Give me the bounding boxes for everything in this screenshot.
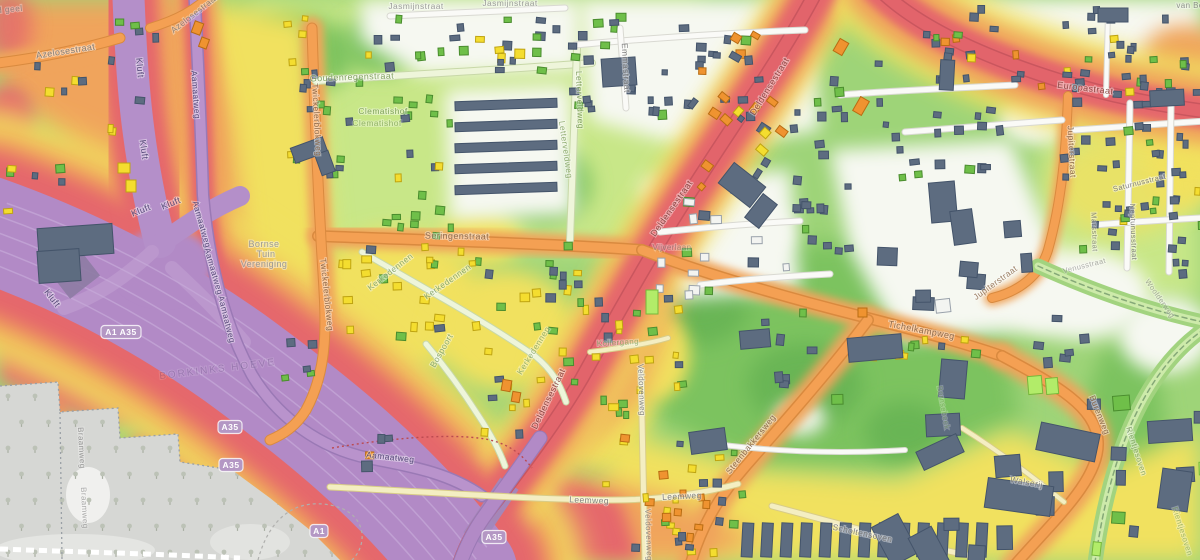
building — [574, 270, 582, 276]
building — [1134, 101, 1143, 108]
building — [1080, 70, 1089, 77]
building — [1194, 411, 1200, 423]
building — [537, 67, 547, 74]
building — [1111, 447, 1126, 461]
building — [1150, 56, 1157, 62]
building — [1045, 378, 1058, 395]
building — [1146, 140, 1153, 146]
street-label: Leemweg — [569, 494, 609, 505]
building — [1179, 269, 1187, 278]
building — [944, 53, 952, 60]
road-minor-tr — [1106, 12, 1108, 95]
building — [899, 174, 906, 181]
building — [688, 270, 698, 276]
building — [1085, 57, 1092, 63]
building — [560, 272, 566, 280]
building — [396, 15, 402, 23]
building — [711, 215, 722, 223]
building — [897, 146, 903, 153]
building — [630, 355, 639, 364]
building — [1135, 123, 1144, 131]
building — [699, 480, 707, 487]
building — [1169, 212, 1178, 219]
building — [308, 340, 317, 348]
building — [281, 375, 288, 381]
building — [131, 22, 140, 29]
building — [916, 290, 931, 302]
street-label: Vijverlaan — [653, 243, 692, 252]
building — [571, 53, 580, 60]
building — [700, 253, 708, 261]
building — [303, 366, 311, 373]
building — [648, 97, 653, 104]
building — [1108, 229, 1116, 236]
building — [935, 298, 951, 313]
building — [858, 308, 867, 317]
building — [817, 204, 824, 213]
street-label: Leemweg — [662, 490, 702, 502]
building — [1177, 133, 1183, 140]
building — [624, 411, 629, 418]
building — [343, 296, 352, 303]
building — [59, 179, 65, 185]
building — [395, 174, 401, 182]
building — [361, 269, 371, 277]
building — [361, 461, 372, 472]
building — [971, 349, 980, 357]
building — [447, 120, 453, 128]
map-canvas[interactable]: d geelAzelosestraatAzelosestraatKluftKlu… — [0, 0, 1200, 560]
building — [1111, 242, 1119, 250]
building — [336, 165, 344, 170]
building — [1195, 187, 1200, 195]
building — [685, 544, 693, 550]
building — [108, 124, 113, 132]
building — [1153, 197, 1159, 205]
building — [677, 441, 684, 447]
building — [575, 281, 583, 288]
building — [715, 517, 723, 525]
building — [601, 42, 610, 49]
building — [1113, 161, 1119, 168]
building — [790, 125, 798, 133]
building — [741, 523, 754, 558]
building — [475, 36, 484, 42]
building — [383, 219, 392, 226]
motorway-shield: A35 — [482, 531, 506, 544]
building — [648, 327, 658, 336]
building — [497, 303, 506, 310]
building — [996, 125, 1004, 135]
building — [990, 26, 998, 32]
building — [1150, 208, 1156, 214]
building — [933, 112, 941, 119]
building — [378, 434, 385, 443]
building — [1173, 259, 1179, 266]
building — [407, 150, 413, 158]
building — [559, 348, 566, 356]
building — [553, 26, 560, 33]
building — [1012, 76, 1021, 82]
motorway-shield-label: A1 — [313, 526, 325, 536]
building — [108, 57, 114, 65]
building — [935, 160, 945, 169]
building — [877, 99, 883, 107]
building — [645, 356, 654, 363]
building — [1108, 52, 1115, 58]
building — [1038, 83, 1045, 90]
building — [713, 52, 720, 58]
building — [289, 59, 296, 66]
building — [498, 59, 504, 65]
building — [793, 205, 801, 212]
building — [1082, 136, 1091, 144]
building — [908, 343, 914, 351]
building — [45, 88, 54, 97]
building — [914, 171, 922, 178]
building — [457, 24, 464, 32]
building — [418, 191, 426, 199]
building — [1115, 206, 1121, 212]
building — [126, 180, 136, 192]
building — [284, 21, 292, 27]
building — [689, 214, 697, 224]
building — [559, 281, 566, 290]
building — [877, 247, 897, 266]
building — [685, 291, 693, 300]
building — [1152, 150, 1160, 157]
building — [729, 520, 738, 528]
building — [679, 532, 686, 540]
building — [892, 133, 900, 141]
building — [410, 221, 418, 228]
building — [751, 237, 762, 244]
building — [832, 394, 844, 404]
building — [1063, 174, 1069, 180]
building — [564, 358, 574, 366]
building — [609, 404, 619, 411]
building — [662, 70, 667, 75]
building — [738, 97, 748, 104]
building — [694, 524, 702, 530]
street-label: Bornse — [249, 239, 280, 249]
building — [807, 347, 817, 354]
building — [37, 249, 81, 284]
building — [1163, 15, 1169, 23]
building — [1073, 98, 1082, 107]
building — [398, 223, 404, 231]
building — [800, 523, 813, 558]
building — [532, 289, 541, 297]
building — [1116, 470, 1125, 485]
building — [934, 34, 939, 40]
building — [615, 321, 622, 330]
building — [819, 523, 832, 558]
building — [7, 165, 16, 172]
building — [1021, 253, 1033, 272]
building — [674, 509, 682, 516]
building — [537, 377, 545, 383]
building — [674, 383, 680, 391]
building — [115, 19, 123, 25]
building — [739, 491, 746, 498]
building — [1065, 349, 1074, 356]
building — [1106, 138, 1115, 146]
building — [438, 48, 444, 56]
building — [534, 323, 541, 330]
noise-map[interactable]: d geelAzelosestraatAzelosestraatKluftKlu… — [0, 0, 1200, 560]
street-label: Veldovenweg — [643, 509, 654, 560]
motorway-shield-label: A1 A35 — [105, 327, 137, 337]
building — [715, 455, 724, 461]
building — [689, 428, 728, 455]
building — [426, 95, 433, 103]
building — [710, 549, 717, 557]
building — [687, 533, 694, 542]
street-label: Clematishof — [352, 118, 402, 128]
building — [688, 465, 696, 473]
building — [1126, 55, 1131, 62]
building — [1126, 88, 1134, 96]
building — [511, 391, 521, 402]
building — [761, 523, 774, 558]
building — [516, 430, 523, 439]
street-label: Tuin — [257, 249, 276, 259]
building — [62, 88, 67, 95]
building — [986, 107, 995, 114]
building — [488, 395, 497, 401]
building — [633, 310, 640, 316]
building — [411, 322, 418, 331]
building — [841, 112, 847, 121]
building — [362, 256, 372, 263]
street-label: van Be — [1176, 1, 1200, 10]
building — [967, 54, 975, 62]
building — [814, 98, 821, 106]
building — [847, 334, 903, 363]
street-label: Clematishof — [358, 106, 408, 116]
building — [135, 28, 143, 35]
building — [153, 33, 159, 42]
building — [1088, 13, 1095, 20]
building — [374, 35, 382, 44]
building — [774, 372, 783, 383]
building — [459, 46, 468, 55]
building — [1180, 172, 1186, 178]
building — [430, 111, 437, 117]
building — [832, 106, 842, 112]
building — [1180, 61, 1186, 68]
building — [923, 31, 930, 38]
building — [472, 321, 480, 330]
building — [745, 56, 753, 65]
motorway-shield: A1 — [310, 525, 328, 538]
building — [300, 84, 307, 92]
building — [963, 75, 969, 82]
building — [427, 257, 433, 263]
building — [366, 52, 372, 58]
building — [118, 163, 130, 173]
building — [1150, 89, 1185, 107]
building — [938, 343, 944, 350]
building — [994, 454, 1021, 477]
building — [755, 77, 764, 83]
building — [713, 479, 721, 487]
building — [520, 293, 530, 302]
building — [835, 87, 845, 97]
building — [1088, 28, 1096, 34]
building — [392, 214, 400, 219]
building — [968, 545, 985, 560]
building — [845, 184, 851, 189]
building — [1112, 512, 1126, 524]
motorway-shield-label: A35 — [221, 422, 238, 432]
building — [571, 379, 577, 385]
building — [135, 97, 145, 105]
building — [1043, 357, 1052, 368]
motorway-shield: A35 — [219, 459, 243, 472]
building — [485, 270, 493, 279]
building — [434, 324, 445, 332]
building — [922, 336, 928, 344]
building — [1141, 203, 1149, 211]
building — [1124, 127, 1134, 136]
building — [1052, 315, 1062, 321]
building — [961, 336, 969, 343]
building — [935, 129, 941, 137]
motorway-shield-label: A35 — [222, 460, 239, 470]
building — [337, 156, 345, 163]
building — [510, 405, 516, 411]
building — [965, 165, 975, 173]
building — [659, 471, 669, 480]
building — [819, 151, 829, 159]
building — [950, 209, 977, 246]
building — [1080, 334, 1090, 344]
building — [705, 287, 713, 295]
building — [646, 290, 658, 314]
building — [32, 173, 38, 180]
building — [761, 319, 769, 326]
building — [815, 140, 825, 148]
building — [835, 248, 842, 255]
building — [504, 17, 511, 22]
building — [603, 482, 610, 487]
building — [602, 313, 609, 322]
building — [601, 396, 607, 405]
building — [619, 400, 628, 408]
building — [584, 56, 594, 65]
building — [1165, 79, 1171, 87]
building — [501, 379, 512, 391]
building — [684, 198, 695, 205]
building — [944, 518, 959, 530]
building — [546, 294, 556, 303]
building — [718, 497, 726, 505]
building — [435, 162, 443, 170]
building — [578, 31, 587, 40]
building — [495, 46, 504, 53]
street-label: Marsstraat — [1089, 212, 1099, 252]
building — [343, 260, 351, 269]
building — [578, 299, 584, 307]
building — [550, 267, 558, 275]
building — [875, 61, 882, 67]
building — [1129, 526, 1139, 538]
building — [1178, 237, 1186, 244]
building — [653, 107, 660, 116]
building — [808, 236, 817, 245]
noise-region-white-small1 — [638, 36, 702, 88]
street-label: Jasmijnstraat — [482, 0, 538, 8]
building — [299, 31, 307, 38]
building — [675, 362, 682, 368]
building — [975, 113, 981, 120]
building — [978, 5, 985, 13]
building — [1140, 82, 1148, 91]
building — [1183, 140, 1188, 148]
building — [536, 17, 546, 23]
building — [658, 258, 665, 267]
building — [981, 165, 991, 170]
building — [696, 43, 706, 51]
building — [673, 352, 679, 358]
building — [997, 526, 1013, 550]
motorway-shield-label: A35 — [485, 532, 502, 542]
building — [415, 52, 420, 59]
street-label: Letterveldweg — [574, 71, 586, 129]
building — [939, 60, 955, 91]
building — [698, 211, 710, 221]
building — [679, 25, 689, 32]
building — [396, 332, 406, 340]
building — [409, 102, 417, 108]
building — [411, 211, 420, 220]
building — [595, 298, 603, 307]
building — [954, 126, 963, 135]
building — [1092, 542, 1101, 556]
building — [662, 513, 670, 521]
building — [564, 242, 572, 250]
building — [56, 164, 66, 173]
building — [739, 329, 770, 350]
building — [1157, 468, 1192, 512]
building — [35, 63, 41, 70]
building — [748, 258, 759, 267]
building — [533, 34, 541, 40]
building — [485, 348, 493, 355]
street-label: Seringenstraat — [425, 230, 489, 241]
building — [1098, 166, 1107, 172]
building — [620, 434, 629, 442]
building — [959, 261, 978, 278]
building — [1113, 91, 1121, 97]
building — [1004, 220, 1022, 237]
building — [391, 35, 400, 40]
building — [793, 176, 802, 185]
building — [610, 20, 619, 26]
building — [515, 49, 525, 58]
building — [347, 326, 354, 334]
building — [302, 16, 308, 22]
building — [3, 208, 12, 214]
building — [1063, 72, 1072, 78]
building — [425, 322, 433, 330]
building — [1127, 46, 1134, 53]
building — [1117, 41, 1124, 48]
building — [800, 309, 807, 317]
building — [1013, 51, 1019, 60]
